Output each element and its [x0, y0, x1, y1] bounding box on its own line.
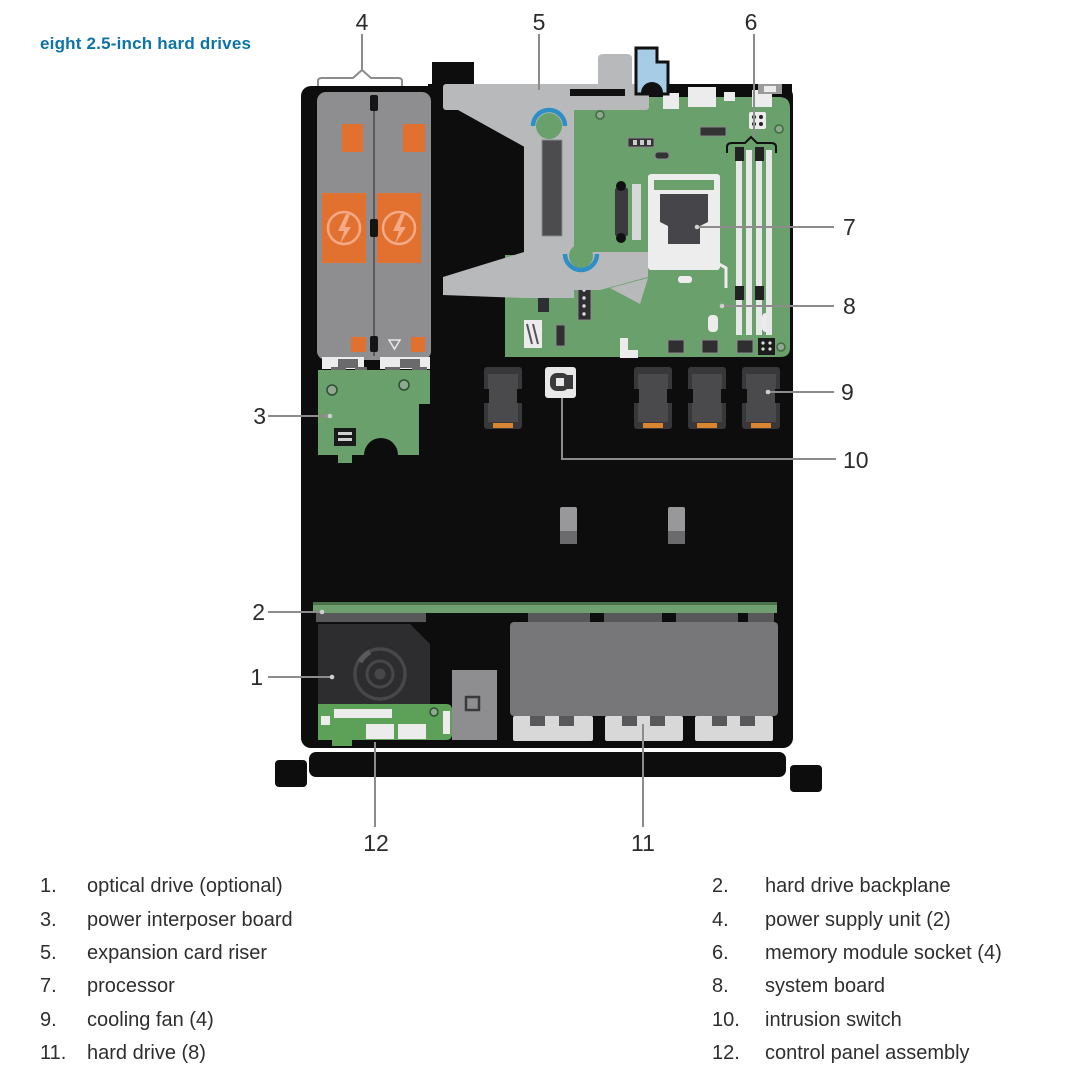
legend-item-number: 12. [712, 1042, 765, 1065]
callout-1: 1 [250, 664, 263, 690]
right-rack-ear [790, 765, 822, 792]
optical-drive [318, 624, 430, 708]
callout-11: 11 [631, 830, 655, 856]
legend-item-label: system board [765, 975, 1072, 998]
legend-item-number: 4. [712, 909, 765, 932]
legend-item-number: 8. [712, 975, 765, 998]
legend-item: 5.expansion card riser [40, 937, 640, 970]
legend-item-label: power supply unit (2) [765, 909, 1072, 932]
legend-item: 8.system board [712, 970, 1072, 1003]
legend-item: 6.memory module socket (4) [712, 937, 1072, 970]
legend-item: 2.hard drive backplane [712, 870, 1072, 903]
figure-page: eight 2.5-inch hard drives [0, 0, 1080, 1080]
legend-item-label: memory module socket (4) [765, 942, 1072, 965]
legend-item-number: 9. [40, 1009, 87, 1032]
legend-right-column: 2.hard drive backplane 4.power supply un… [712, 870, 1072, 1070]
legend-item-number: 6. [712, 942, 765, 965]
callout-4: 4 [356, 9, 369, 35]
control-panel-assembly [318, 704, 452, 746]
callout-10: 10 [843, 447, 869, 473]
legend-item-label: optical drive (optional) [87, 875, 640, 898]
legend-item-number: 3. [40, 909, 87, 932]
legend-item-label: hard drive backplane [765, 875, 1072, 898]
legend-left-column: 1.optical drive (optional) 3.power inter… [40, 870, 640, 1070]
legend-item-label: processor [87, 975, 640, 998]
legend-item: 11.hard drive (8) [40, 1037, 640, 1070]
legend-item-label: expansion card riser [87, 942, 640, 965]
hard-drive-carrier [695, 716, 773, 741]
cooling-fan [687, 367, 727, 429]
legend-item-label: intrusion switch [765, 1009, 1072, 1032]
left-rack-ear [275, 760, 307, 787]
callout-12: 12 [363, 830, 389, 856]
legend-item-number: 1. [40, 875, 87, 898]
callout-5: 5 [533, 9, 546, 35]
intrusion-switch [545, 367, 576, 398]
legend-item-number: 10. [712, 1009, 765, 1032]
legend-item: 3.power interposer board [40, 903, 640, 936]
legend-item-label: power interposer board [87, 909, 640, 932]
front-rail [309, 752, 786, 777]
power-supply-units [317, 92, 431, 375]
riser-release-latch [636, 48, 668, 94]
legend-item: 10.intrusion switch [712, 1004, 1072, 1037]
callout-7: 7 [843, 214, 856, 240]
legend-item-label: hard drive (8) [87, 1042, 640, 1065]
legend-item-number: 5. [40, 942, 87, 965]
legend-item-number: 11. [40, 1042, 87, 1065]
legend-item: 9.cooling fan (4) [40, 1004, 640, 1037]
callout-3: 3 [253, 403, 266, 429]
legend-item: 1.optical drive (optional) [40, 870, 640, 903]
callout-9: 9 [841, 379, 854, 405]
legend-item: 4.power supply unit (2) [712, 903, 1072, 936]
cooling-fan [633, 367, 673, 429]
legend-item: 12.control panel assembly [712, 1037, 1072, 1070]
legend-item-number: 7. [40, 975, 87, 998]
drive-bay-bracket [452, 670, 497, 740]
callout-8: 8 [843, 293, 856, 319]
hard-drive-carrier [513, 716, 593, 741]
callout-2: 2 [252, 599, 265, 625]
cooling-fan [741, 367, 781, 429]
legend-item-number: 2. [712, 875, 765, 898]
hard-drives [510, 622, 778, 741]
legend-item-label: cooling fan (4) [87, 1009, 640, 1032]
callout-6: 6 [745, 9, 758, 35]
legend-item: 7.processor [40, 970, 640, 1003]
legend-item-label: control panel assembly [765, 1042, 1072, 1065]
hard-drive-backplane [313, 602, 777, 622]
cooling-fan [483, 367, 523, 429]
